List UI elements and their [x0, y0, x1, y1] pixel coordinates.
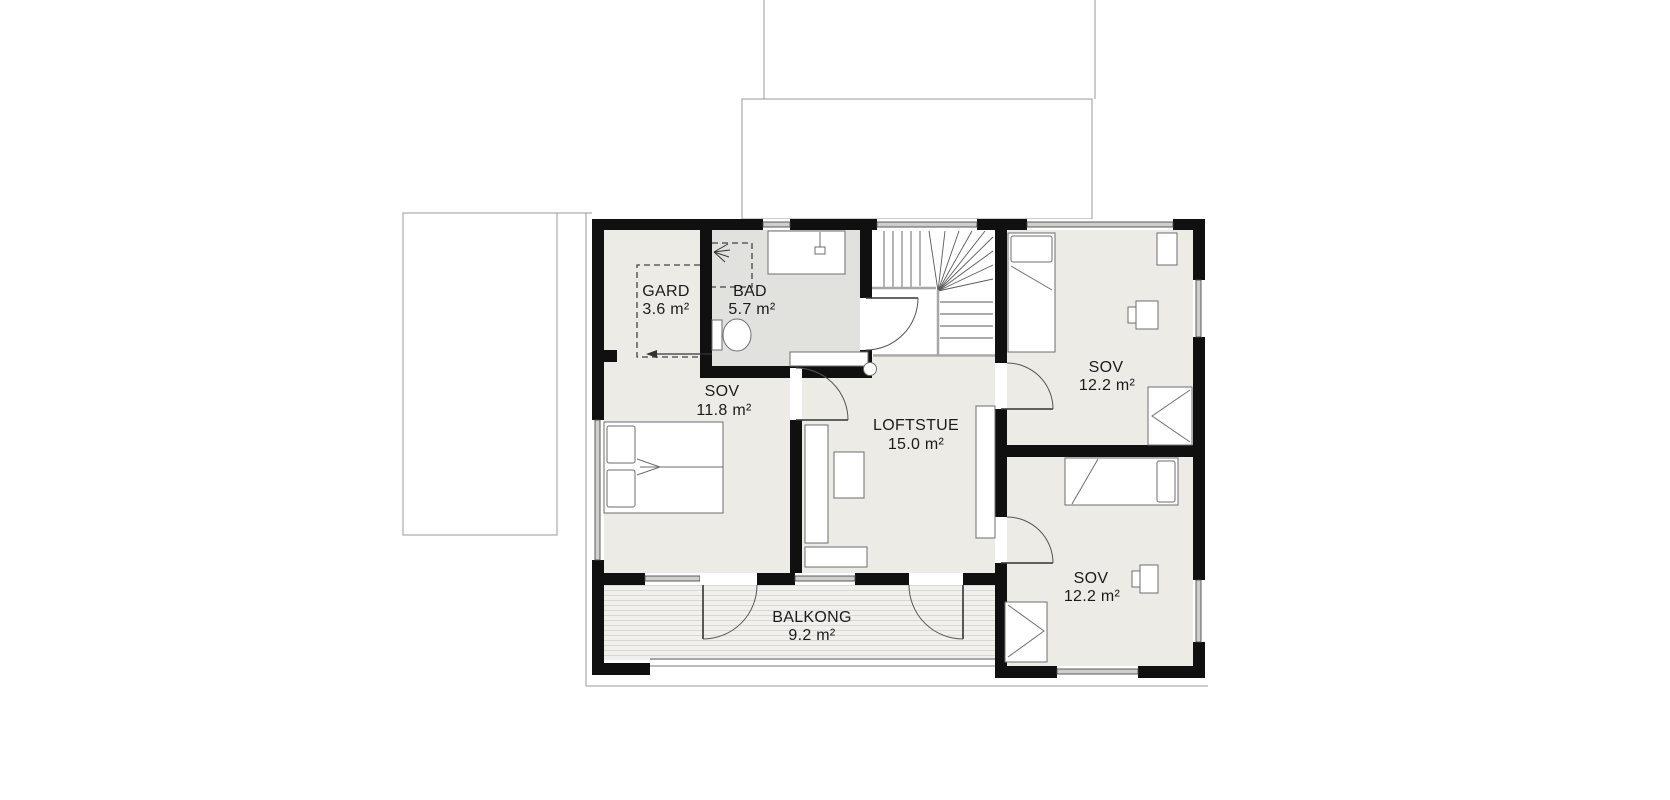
- loftstue-shelf: [805, 425, 828, 543]
- balcony-wall-west: [592, 585, 604, 675]
- loftstue-bench: [805, 547, 867, 567]
- bed-sov-bottom-right: [1065, 458, 1178, 505]
- nightstand-top-right: [1157, 233, 1177, 265]
- wall-gard-bad: [700, 230, 712, 366]
- room-area-sov118: 11.8 m²: [696, 402, 752, 419]
- bath-counter: [768, 231, 845, 274]
- room-label-sov-bottom: SOV: [1074, 570, 1109, 587]
- wall-hall-stub: [592, 350, 617, 362]
- window-north-small: [763, 219, 790, 230]
- loftstue-table: [834, 452, 864, 498]
- wall-bad-east: [860, 230, 872, 298]
- room-area-gard: 3.6 m²: [642, 301, 690, 318]
- closet-top-right: [1148, 387, 1192, 445]
- toilet-tank: [712, 320, 722, 350]
- desk-bottom-right: [1140, 565, 1158, 593]
- bed-sov118: [604, 422, 723, 513]
- window-south-sov122: [1057, 666, 1138, 678]
- window-east-sov-bottom: [1193, 580, 1205, 642]
- bath-vanity: [790, 352, 868, 366]
- window-north-stair: [877, 219, 977, 230]
- tv-bench: [976, 406, 995, 538]
- window-east-sov-top: [1193, 280, 1205, 337]
- room-label-sov-top: SOV: [1089, 359, 1124, 376]
- room-area-loftstue: 15.0 m²: [888, 436, 945, 453]
- entry-roof-outline: [742, 99, 1092, 219]
- room-area-sov-top: 12.2 m²: [1079, 377, 1136, 394]
- bed-sov-top-right: [1008, 233, 1055, 352]
- wall-between-sov: [995, 445, 1205, 457]
- faucet-base: [815, 247, 825, 254]
- window-south-loftstue: [795, 573, 855, 585]
- desk-top-right: [1136, 301, 1158, 329]
- floor-plan-page: GARD 3.6 m² BAD 5.7 m² SOV 11.8 m² LOFTS…: [0, 0, 1670, 800]
- window-west-sov: [592, 420, 604, 560]
- room-area-bad: 5.7 m²: [728, 301, 776, 318]
- chair-bottom-right: [1132, 571, 1140, 587]
- room-label-balkong: BALKONG: [772, 609, 851, 626]
- staircase: [872, 230, 995, 357]
- room-label-gard: GARD: [642, 283, 689, 300]
- garage-roof-outline: [403, 213, 557, 535]
- room-label-bad: BAD: [733, 283, 767, 300]
- window-north-sov: [1027, 219, 1173, 230]
- window-south-sov118: [645, 573, 700, 585]
- room-area-balkong: 9.2 m²: [788, 627, 836, 644]
- loftstue-circle-symbol: [864, 363, 877, 376]
- wall-bad-south: [700, 366, 872, 378]
- toilet-bowl: [723, 319, 751, 351]
- room-label-sov118: SOV: [705, 383, 740, 400]
- wall-sov-loftstue: [790, 420, 802, 585]
- closet-bottom-right: [1005, 602, 1047, 662]
- floor-plan-drawing: GARD 3.6 m² BAD 5.7 m² SOV 11.8 m² LOFTS…: [0, 0, 1670, 800]
- room-label-loftstue: LOFTSTUE: [873, 417, 959, 434]
- chair-top-right: [1128, 307, 1136, 323]
- room-area-sov-bottom: 12.2 m²: [1064, 588, 1121, 605]
- balcony-wall-south: [592, 663, 650, 675]
